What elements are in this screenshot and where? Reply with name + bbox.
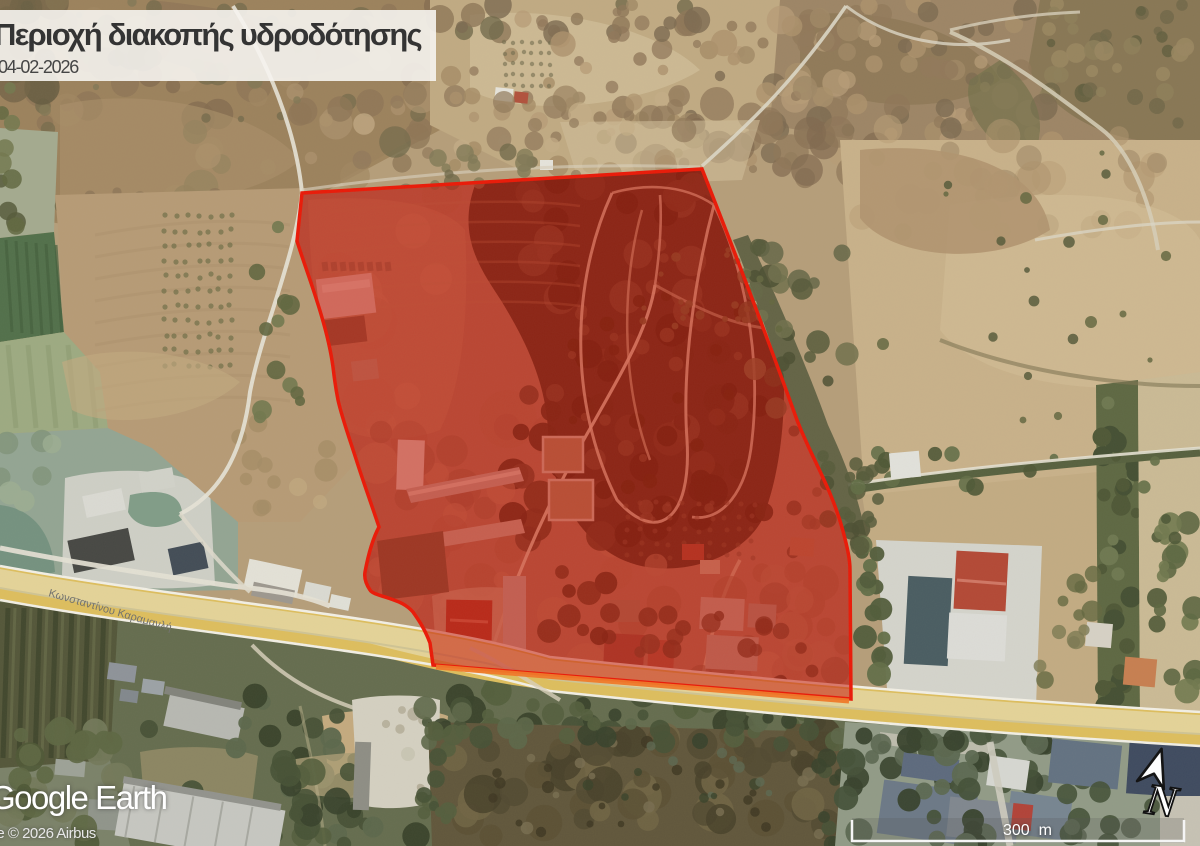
svg-text:Κωνσταντίνου Καραμανλή: Κωνσταντίνου Καραμανλή [47, 587, 173, 634]
